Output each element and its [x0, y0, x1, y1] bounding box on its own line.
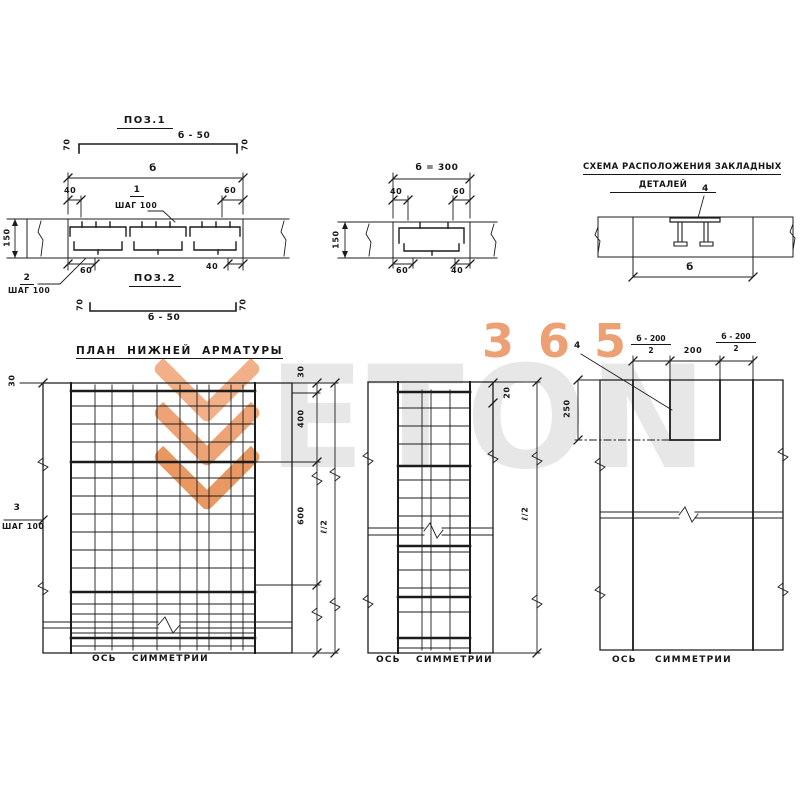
section2-dim-60: 60: [453, 187, 465, 196]
pos1-title: ПОЗ.1: [117, 115, 173, 129]
section1-height-dim: 150: [2, 223, 11, 253]
plan-left-callout-number: 3: [10, 503, 24, 513]
fraction-numerator: б - 200: [631, 335, 671, 345]
pos1-bar-shape: [79, 144, 237, 153]
fraction-denominator: 2: [716, 343, 756, 352]
pos2-length-dim: б - 50: [148, 313, 180, 323]
plan-left-edge-dim-left: 30: [7, 370, 16, 392]
section2-overall-dim: б = 300: [407, 163, 467, 173]
section1-overall-dim: б: [145, 163, 161, 175]
pos2-end-dim-left: 70: [75, 293, 84, 317]
section1-dim-60: 60: [224, 186, 236, 195]
plan-right-callout-4: 4: [574, 341, 581, 351]
scheme-title-line2: ДЕТАЛЕЙ: [610, 181, 716, 193]
plan-right-center-dim-200: 200: [679, 346, 707, 355]
fraction-denominator: 2: [631, 345, 671, 354]
pos2-end-dim-right: 70: [238, 293, 247, 317]
plan-right-right-fraction-dim: б - 200 2: [716, 333, 756, 352]
section2-dim-40: 40: [390, 187, 402, 196]
plan-right-axis-label: ОСЬ СИММЕТРИИ: [612, 655, 732, 665]
fraction-numerator: б - 200: [716, 333, 756, 343]
plan-left-half-length-dim: ℓ/2: [319, 514, 328, 540]
scheme-callout-4: 4: [702, 184, 709, 194]
plan-left-title: ПЛАН НИЖНЕЙ АРМАТУРЫ: [76, 345, 283, 359]
plan-middle-axis-label: ОСЬ СИММЕТРИИ: [376, 655, 493, 665]
plan-left-axis-label: ОСЬ СИММЕТРИИ: [92, 654, 209, 664]
plan-left-drawing: [4, 379, 340, 657]
scheme-title-line1: СХЕМА РАСПОЛОЖЕНИЯ ЗАКЛАДНЫХ: [583, 163, 781, 175]
section1-bottom-dim-40: 40: [206, 262, 218, 271]
plan-middle-half-length-dim: ℓ/2: [520, 501, 529, 527]
section2-bottom-dim-60: 60: [396, 266, 408, 275]
pos2-title: ПОЗ.2: [129, 273, 181, 287]
section1-bottom-dim-60: 60: [80, 266, 92, 275]
scheme-width-dim: б: [682, 262, 698, 274]
pos1-end-dim-left: 70: [62, 133, 71, 157]
section1-callout1-step: ШАГ 100: [115, 202, 157, 211]
section2-bottom-dim-40: 40: [451, 266, 463, 275]
plan-right-left-fraction-dim: б - 200 2: [631, 335, 671, 354]
plan-left-dim-400: 400: [296, 404, 305, 434]
pos1-length-dim: б - 50: [178, 131, 210, 141]
section1-drawing: [7, 173, 289, 284]
plan-left-edge-dim-right: 30: [296, 361, 305, 383]
plan-middle-drawing: [363, 378, 542, 657]
section1-callout2-number: 2: [20, 273, 34, 285]
section2-height-dim: 150: [331, 225, 340, 255]
plan-left-dim-600: 600: [296, 501, 305, 531]
blueprint-sheet: ETON 365: [0, 0, 800, 800]
pos2-bar-shape: [90, 303, 236, 311]
plan-left-callout-step: ШАГ 100: [2, 523, 44, 532]
plan-middle-edge-dim: 20: [502, 382, 511, 404]
plan-right-depth-dim-250: 250: [562, 394, 571, 424]
section1-callout2-step: ШАГ 100: [8, 287, 50, 296]
pos1-end-dim-right: 70: [240, 133, 249, 157]
section2-drawing: [338, 173, 497, 268]
section1-dim-40: 40: [64, 186, 76, 195]
plan-right-drawing: [574, 354, 788, 650]
section1-callout1-number: 1: [130, 185, 144, 197]
